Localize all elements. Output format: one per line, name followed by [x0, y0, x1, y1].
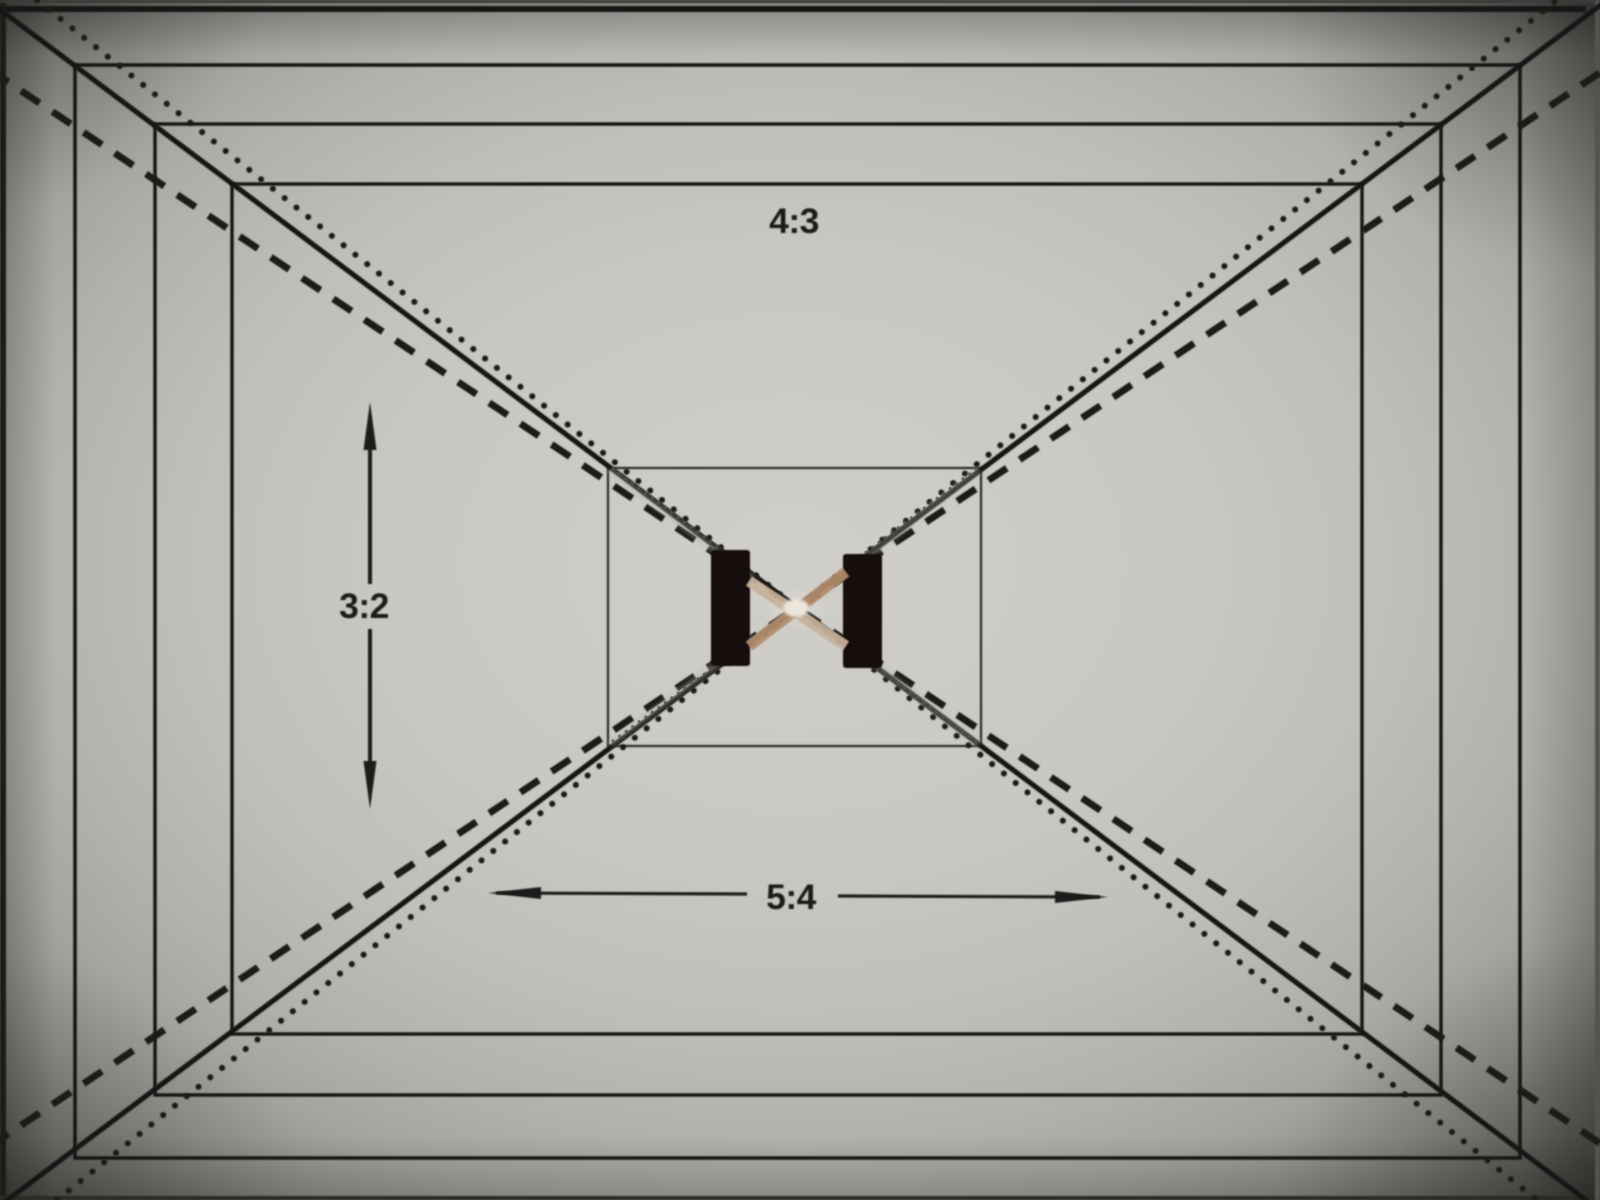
svg-text:3:2: 3:2: [339, 586, 389, 626]
svg-text:5:4: 5:4: [766, 877, 817, 917]
svg-text:4:3: 4:3: [769, 201, 819, 241]
